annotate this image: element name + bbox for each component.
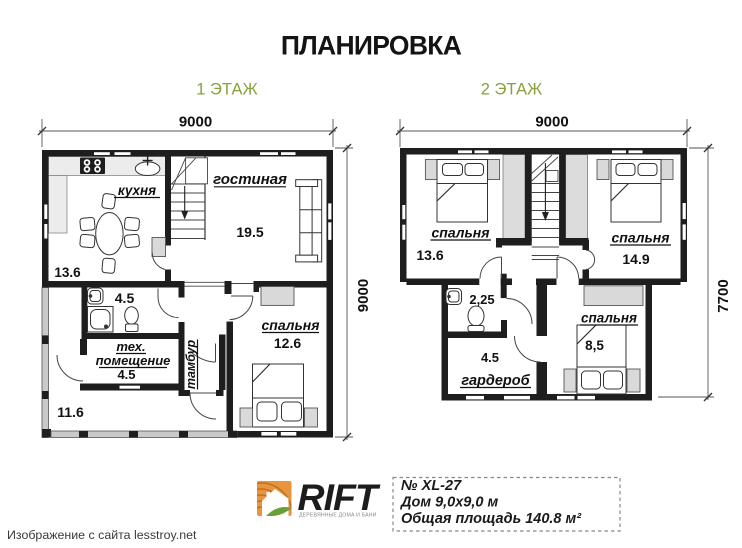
svg-text:13.6: 13.6 [54, 265, 81, 280]
svg-text:9000: 9000 [355, 279, 372, 312]
svg-text:12.6: 12.6 [274, 335, 301, 351]
svg-text:2,25: 2,25 [469, 292, 494, 307]
svg-text:2 ЭТАЖ: 2 ЭТАЖ [481, 81, 543, 99]
svg-text:помещение: помещение [96, 353, 171, 368]
svg-text:11.6: 11.6 [57, 404, 84, 420]
svg-text:спальня: спальня [581, 311, 637, 326]
svg-text:13.6: 13.6 [416, 247, 443, 263]
svg-text:кухня: кухня [118, 183, 156, 198]
svg-text:4.5: 4.5 [481, 350, 499, 365]
svg-text:8,5: 8,5 [585, 338, 604, 353]
svg-text:14.9: 14.9 [622, 251, 649, 267]
svg-text:№ XL-27: № XL-27 [401, 478, 462, 494]
svg-text:ПЛАНИРОВКА: ПЛАНИРОВКА [281, 31, 462, 61]
svg-text:гардероб: гардероб [461, 373, 530, 389]
svg-text:4.5: 4.5 [115, 290, 135, 306]
svg-text:спальня: спальня [261, 317, 319, 333]
svg-text:тамбур: тамбур [184, 339, 198, 389]
svg-text:9000: 9000 [179, 114, 212, 131]
svg-text:RIFT: RIFT [298, 476, 381, 518]
svg-text:1 ЭТАЖ: 1 ЭТАЖ [196, 81, 258, 99]
svg-text:Изображение с сайта lesstroy.n: Изображение с сайта lesstroy.net [7, 528, 197, 542]
svg-text:7700: 7700 [715, 279, 732, 312]
svg-text:спальня: спальня [611, 230, 669, 246]
svg-text:ДЕРЕВЯННЫЕ ДОМА И БАНИ: ДЕРЕВЯННЫЕ ДОМА И БАНИ [299, 513, 377, 519]
svg-text:Общая площадь 140.8 м²: Общая площадь 140.8 м² [401, 511, 582, 527]
svg-text:9000: 9000 [535, 114, 568, 131]
svg-text:Дом 9,0х9,0 м: Дом 9,0х9,0 м [399, 495, 498, 511]
svg-text:4.5: 4.5 [117, 367, 135, 382]
svg-text:19.5: 19.5 [236, 224, 263, 240]
svg-text:тех.: тех. [116, 339, 145, 354]
svg-text:гостиная: гостиная [213, 171, 287, 188]
svg-text:спальня: спальня [431, 225, 489, 241]
